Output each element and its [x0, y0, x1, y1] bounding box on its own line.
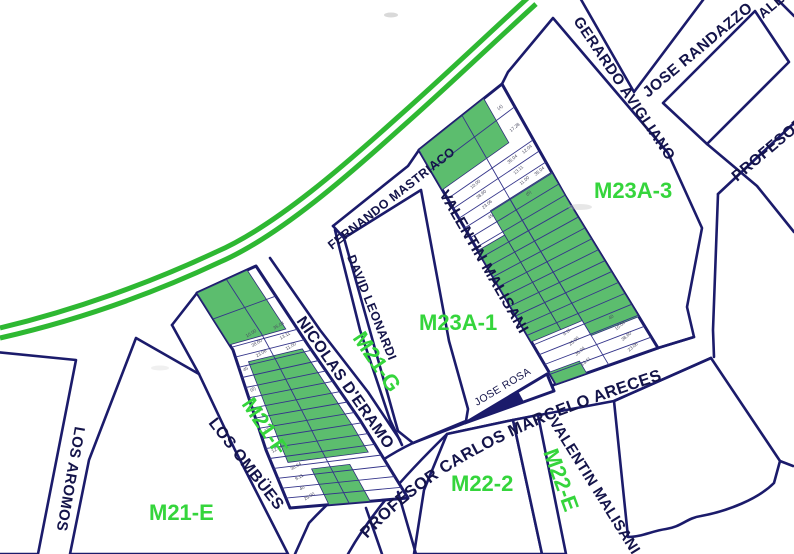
svg-text:M21-E: M21-E [149, 500, 214, 525]
svg-text:M22-2: M22-2 [451, 471, 513, 496]
svg-text:M23A-1: M23A-1 [419, 310, 497, 335]
svg-text:M23A-3: M23A-3 [594, 178, 672, 203]
